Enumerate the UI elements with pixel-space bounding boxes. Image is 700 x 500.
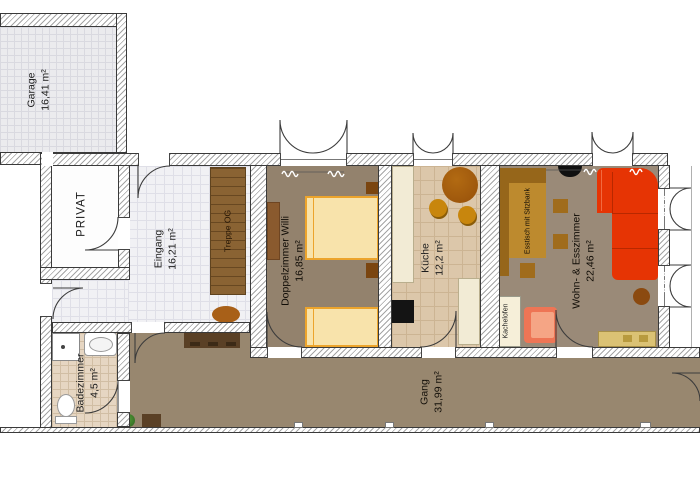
wardrobe bbox=[184, 333, 240, 348]
armchair-seat bbox=[531, 312, 554, 338]
room-name: Eingang bbox=[152, 228, 166, 269]
toilet-tank bbox=[55, 416, 77, 424]
wall-house-top bbox=[40, 153, 668, 166]
kitchen-counter-right bbox=[458, 278, 480, 345]
opening-kueche-door bbox=[421, 347, 456, 358]
washbasin-cabinet bbox=[84, 332, 117, 356]
room-label-gang: Gang 31,99 m² bbox=[418, 371, 445, 412]
opening-side-entry-door bbox=[40, 283, 52, 317]
kitchen-stool bbox=[458, 206, 476, 224]
room-area: 31,99 m² bbox=[432, 371, 446, 412]
corner-sofa-right-arm bbox=[612, 168, 658, 280]
room-name: Garage bbox=[25, 69, 39, 110]
floor-plan: Garage 16,41 m² PRIVAT Eingang 16,21 m² … bbox=[0, 0, 700, 500]
dining-stool bbox=[553, 234, 568, 249]
room-floor-garage bbox=[0, 27, 116, 152]
opening-garage-door bbox=[42, 152, 53, 166]
furniture-label-kachelofen: Kachelofen bbox=[501, 303, 510, 338]
toilet-bowl bbox=[57, 394, 75, 417]
bed-headboard-line bbox=[313, 309, 314, 345]
furniture-label: Kachelofen bbox=[501, 303, 510, 338]
hall-shelf bbox=[142, 414, 161, 427]
furniture-label: Esstisch mit Sitzbank bbox=[523, 188, 532, 254]
sideboard-item bbox=[623, 335, 632, 342]
room-label-privat: PRIVAT bbox=[75, 191, 90, 237]
room-area: 22,46 m² bbox=[584, 213, 598, 309]
room-area: 12,2 m² bbox=[433, 240, 447, 276]
dining-bench-top bbox=[493, 168, 546, 183]
room-name: Wohn- & Esszimmer bbox=[570, 213, 584, 309]
wall-marker bbox=[294, 422, 303, 428]
wall-dz-kueche bbox=[378, 165, 392, 358]
wardrobe-detail bbox=[208, 342, 218, 346]
french-door-kueche-right bbox=[433, 133, 453, 153]
room-label-eingang: Eingang 16,21 m² bbox=[152, 228, 179, 269]
kitchen-stove bbox=[392, 300, 414, 323]
room-label-kueche: Küche 12,2 m² bbox=[419, 240, 446, 276]
french-door-dz-right bbox=[313, 120, 347, 153]
sideboard bbox=[598, 331, 656, 347]
room-name: Treppe OG bbox=[222, 210, 233, 252]
kitchen-counter-left bbox=[392, 166, 414, 283]
opening-dz-door bbox=[267, 347, 302, 358]
wall-marker bbox=[385, 422, 394, 428]
opening-entry-door bbox=[138, 153, 170, 166]
sideboard-item bbox=[639, 335, 648, 342]
room-area: 16,41 m² bbox=[39, 69, 53, 110]
french-door-kueche-left bbox=[413, 133, 433, 153]
window-doppelzimmer bbox=[280, 153, 347, 166]
kitchen-stool bbox=[429, 199, 447, 217]
opening-bad-door bbox=[117, 380, 130, 413]
wall-marker bbox=[640, 422, 651, 428]
room-label-garage: Garage 16,41 m² bbox=[25, 69, 52, 110]
bed-double-bottom bbox=[305, 307, 379, 347]
wall-garage-right bbox=[116, 13, 127, 165]
wall-marker bbox=[485, 422, 494, 428]
wall-eingang-dz bbox=[250, 165, 267, 358]
wall-house-bottom bbox=[0, 427, 700, 433]
furniture-label-esstisch: Esstisch mit Sitzbank bbox=[523, 188, 532, 254]
french-door-wz-top-right bbox=[613, 132, 633, 153]
room-label-badezimmer: Badezimmer 4,5 m² bbox=[74, 354, 101, 413]
opening-wz-right-door-2 bbox=[658, 265, 670, 307]
sofa-backrest-line bbox=[601, 170, 602, 211]
dining-stool bbox=[520, 263, 535, 278]
wall-rooms-bottom bbox=[250, 347, 700, 358]
kitchen-table-round bbox=[442, 167, 478, 203]
room-name: Gang bbox=[418, 371, 432, 412]
room-label-treppe: Treppe OG bbox=[222, 210, 233, 252]
rug-oval bbox=[212, 306, 240, 323]
french-door-wz-right1-bottom bbox=[670, 209, 691, 230]
opening-wz-right-door-1 bbox=[658, 188, 670, 230]
side-table-round bbox=[633, 288, 650, 305]
french-door-wz-right2-top bbox=[670, 265, 691, 286]
wardrobe-detail bbox=[226, 342, 236, 346]
opening-wz-gang-door bbox=[556, 347, 593, 358]
opening-privat-door bbox=[118, 217, 130, 250]
shower-drain bbox=[61, 345, 65, 349]
opening-wz-top-door bbox=[592, 153, 633, 166]
room-floor-eingang-extension bbox=[52, 280, 128, 322]
dresser bbox=[267, 202, 280, 260]
room-label-wohnzimmer: Wohn- & Esszimmer 22,46 m² bbox=[570, 213, 597, 309]
wall-kueche-wz bbox=[480, 165, 500, 358]
french-door-wz-right2-bottom bbox=[670, 286, 691, 307]
room-area: 4,5 m² bbox=[88, 354, 102, 413]
french-door-dz-left bbox=[280, 120, 313, 153]
room-name: PRIVAT bbox=[75, 191, 90, 237]
sofa-seam bbox=[612, 248, 658, 249]
french-door-wz-top-left bbox=[592, 132, 613, 153]
dining-stool bbox=[553, 199, 568, 213]
wall-garage-top bbox=[0, 13, 127, 27]
room-area: 16,85 m² bbox=[293, 216, 307, 306]
sofa-seam bbox=[612, 213, 658, 214]
room-name: Badezimmer bbox=[74, 354, 88, 413]
room-floor-gang bbox=[250, 358, 700, 427]
room-area: 16,21 m² bbox=[166, 228, 180, 269]
wall-privat-bottom bbox=[40, 267, 130, 280]
french-door-wz-right1-top bbox=[670, 188, 691, 209]
bed-double-top bbox=[305, 196, 379, 260]
window-kueche bbox=[413, 153, 453, 166]
room-label-doppelzimmer: Doppelzimmer Willi 16,85 m² bbox=[279, 216, 306, 306]
bed-headboard-line bbox=[313, 198, 314, 258]
room-name: Doppelzimmer Willi bbox=[279, 216, 293, 306]
opening-eingang-gang-door bbox=[131, 322, 165, 333]
terrace-edge-line bbox=[691, 166, 692, 347]
room-name: Küche bbox=[419, 240, 433, 276]
wardrobe-detail bbox=[190, 342, 200, 346]
washbasin-bowl bbox=[89, 337, 113, 352]
armchair bbox=[524, 307, 557, 343]
sofa-seam bbox=[612, 172, 613, 213]
